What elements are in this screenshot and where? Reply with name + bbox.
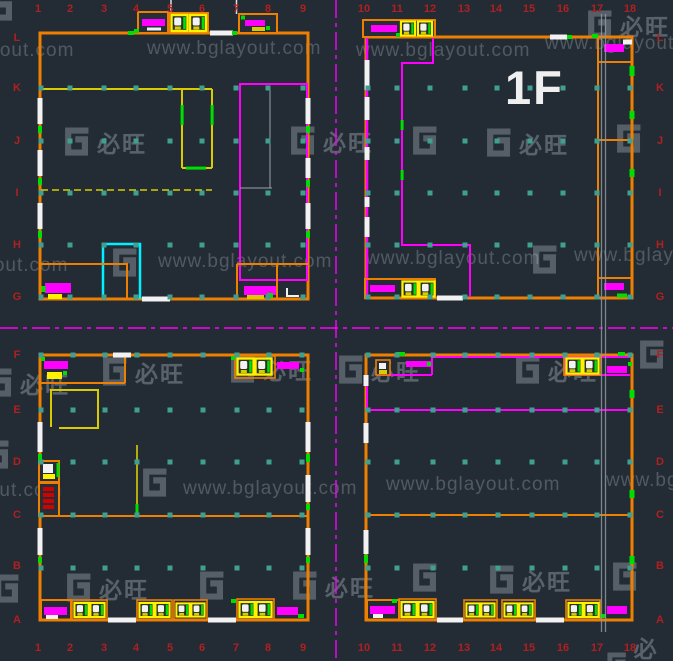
grid-col-label-top: 10 — [358, 3, 370, 15]
grid-col-label-top: 11 — [391, 3, 403, 15]
grid-col-label-top: 3 — [101, 3, 107, 15]
grid-row-label-left: A — [13, 614, 21, 626]
grid-row-label-right: B — [656, 560, 664, 572]
grid-row-label-right: L — [657, 32, 664, 44]
grid-col-label-bottom: 5 — [167, 642, 173, 654]
grid-col-label-bottom: 13 — [458, 642, 470, 654]
grid-col-label-top: 12 — [424, 3, 436, 15]
grid-row-label-right: E — [656, 404, 663, 416]
grid-col-label-bottom: 11 — [391, 642, 403, 654]
grid-row-label-right: D — [656, 456, 664, 468]
grid-col-label-bottom: 15 — [523, 642, 535, 654]
grid-col-label-top: 17 — [591, 3, 603, 15]
grid-row-label-left: I — [15, 187, 18, 199]
grid-row-label-right: F — [657, 349, 664, 361]
grid-row-label-right: C — [656, 509, 664, 521]
grid-row-label-left: G — [13, 291, 22, 303]
grid-col-label-bottom: 6 — [199, 642, 205, 654]
grid-col-label-bottom: 14 — [490, 642, 502, 654]
grid-col-label-bottom: 2 — [67, 642, 73, 654]
grid-row-label-left: B — [13, 560, 21, 572]
grid-row-label-left: F — [14, 349, 21, 361]
grid-col-label-bottom: 4 — [133, 642, 139, 654]
grid-col-label-top: 13 — [458, 3, 470, 15]
grid-row-label-right: A — [656, 614, 664, 626]
grid-row-label-right: H — [656, 239, 664, 251]
grid-row-label-left: C — [13, 509, 21, 521]
grid-row-label-right: K — [656, 82, 664, 94]
grid-col-label-top: 2 — [67, 3, 73, 15]
grid-col-label-top: 4 — [133, 3, 139, 15]
grid-col-label-top: 9 — [300, 3, 306, 15]
cad-viewport[interactable]: www.bglayout.comwww.bglayout.comwww.bgla… — [0, 0, 673, 661]
grid-row-label-left: J — [14, 135, 20, 147]
grid-row-label-right: J — [657, 135, 663, 147]
grid-col-label-bottom: 8 — [265, 642, 271, 654]
grid-col-label-bottom: 9 — [300, 642, 306, 654]
grid-col-label-top: 5 — [167, 3, 173, 15]
grid-row-label-left: K — [13, 82, 21, 94]
grid-col-label-bottom: 12 — [424, 642, 436, 654]
grid-col-label-top: 16 — [557, 3, 569, 15]
grid-row-label-left: L — [14, 32, 21, 44]
grid-row-label-right: I — [658, 187, 661, 199]
grid-col-label-bottom: 17 — [591, 642, 603, 654]
grid-col-label-top: 8 — [265, 3, 271, 15]
grid-col-label-top: 7 — [233, 3, 239, 15]
grid-col-label-top: 14 — [490, 3, 502, 15]
grid-row-label-right: G — [656, 291, 665, 303]
grid-col-label-bottom: 3 — [101, 642, 107, 654]
grid-row-label-left: E — [13, 404, 20, 416]
grid-row-label-left: H — [13, 239, 21, 251]
grid-col-label-bottom: 10 — [358, 642, 370, 654]
grid-col-label-top: 6 — [199, 3, 205, 15]
grid-col-label-top: 15 — [523, 3, 535, 15]
grid-label-layer: 1122334455667788991010111112121313141415… — [0, 0, 673, 661]
grid-col-label-top: 1 — [35, 3, 41, 15]
grid-col-label-bottom: 16 — [557, 642, 569, 654]
grid-col-label-bottom: 7 — [233, 642, 239, 654]
grid-col-label-bottom: 18 — [624, 642, 636, 654]
grid-col-label-bottom: 1 — [35, 642, 41, 654]
grid-col-label-top: 18 — [624, 3, 636, 15]
grid-row-label-left: D — [13, 456, 21, 468]
